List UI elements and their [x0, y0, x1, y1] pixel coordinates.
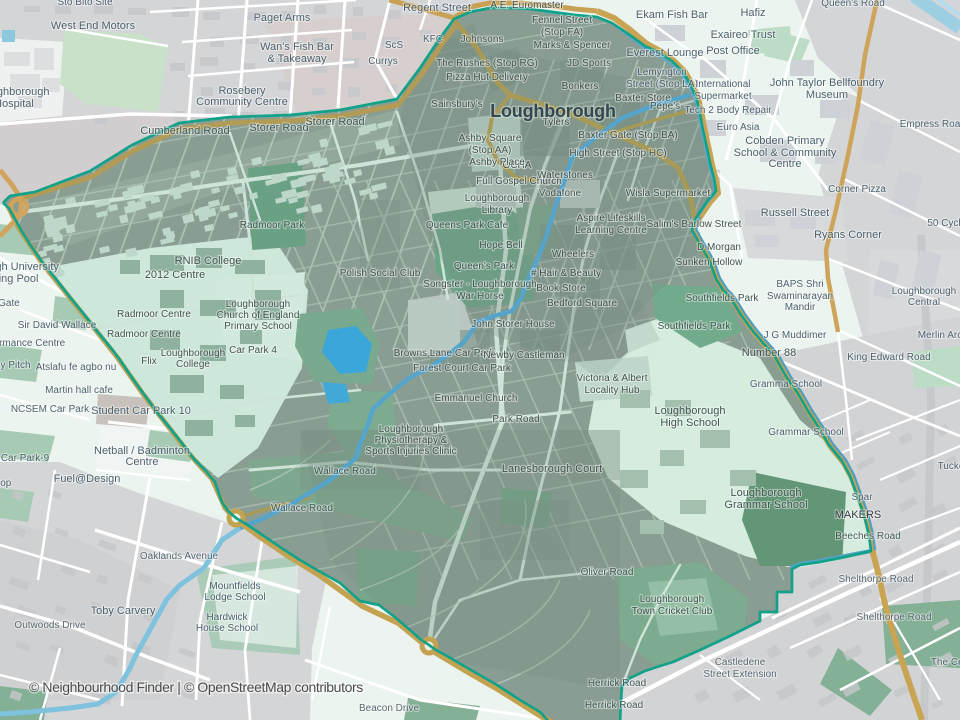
- svg-text:Browns Lane Car Park: Browns Lane Car Park: [394, 348, 496, 359]
- svg-text:Bedford Square: Bedford Square: [547, 298, 617, 309]
- svg-text:Newby Castleman: Newby Castleman: [483, 350, 564, 361]
- svg-text:ScS: ScS: [385, 40, 404, 51]
- svg-text:Community Centre: Community Centre: [196, 96, 288, 108]
- svg-text:Physiotherapy &: Physiotherapy &: [375, 435, 448, 446]
- svg-text:Cobden Primary: Cobden Primary: [745, 135, 825, 147]
- svg-text:RNIB College: RNIB College: [175, 255, 242, 267]
- svg-text:Museum: Museum: [806, 89, 848, 101]
- svg-text:Central: Central: [908, 297, 940, 308]
- svg-text:Lanesborough Court: Lanesborough Court: [502, 463, 602, 475]
- svg-text:Park Road: Park Road: [492, 414, 539, 425]
- svg-text:Flix: Flix: [141, 356, 157, 367]
- svg-text:Loughborough: Loughborough: [379, 424, 444, 435]
- svg-text:Student Car Park 10: Student Car Park 10: [91, 405, 191, 417]
- svg-text:JD Sports: JD Sports: [567, 58, 611, 69]
- svg-text:J G Muddimer: J G Muddimer: [764, 330, 827, 341]
- svg-text:ming Pool: ming Pool: [0, 273, 38, 285]
- svg-text:Mandir: Mandir: [785, 302, 816, 313]
- svg-text:Spar: Spar: [851, 492, 873, 503]
- svg-text:Toby Carvery: Toby Carvery: [91, 605, 156, 617]
- svg-text:Corner Pizza: Corner Pizza: [828, 184, 886, 195]
- svg-text:Hope Bell: Hope Bell: [479, 240, 522, 251]
- svg-text:College: College: [176, 359, 210, 370]
- svg-text:House School: House School: [196, 623, 258, 634]
- svg-text:Forest Court Car Park: Forest Court Car Park: [413, 363, 512, 374]
- svg-text:Loughborough: Loughborough: [0, 86, 49, 98]
- svg-text:Beacon Drive: Beacon Drive: [359, 703, 419, 714]
- svg-text:Fuel@Design: Fuel@Design: [54, 473, 121, 485]
- svg-text:Southfields Park: Southfields Park: [658, 321, 732, 332]
- svg-text:MAKERS: MAKERS: [835, 509, 881, 521]
- svg-text:Empress Roa: Empress Roa: [900, 119, 960, 130]
- svg-text:hop: hop: [0, 478, 12, 489]
- svg-text:Polish Social Club: Polish Social Club: [340, 268, 421, 279]
- svg-text:Vodafone: Vodafone: [539, 188, 582, 199]
- svg-text:Sports Injuries Clinic: Sports Injuries Clinic: [365, 446, 456, 457]
- svg-text:Ashby Place: Ashby Place: [469, 157, 525, 168]
- svg-text:NCSEM Car Park: NCSEM Car Park: [11, 404, 90, 415]
- svg-text:Loughborough: Loughborough: [465, 193, 530, 204]
- svg-text:Songster - Loughborough: Songster - Loughborough: [423, 279, 536, 290]
- svg-text:Town Cricket Club: Town Cricket Club: [632, 606, 713, 617]
- svg-text:Radmoor Park: Radmoor Park: [240, 220, 305, 231]
- svg-text:Exaireo Trust: Exaireo Trust: [711, 29, 776, 41]
- svg-text:Southfields Park: Southfields Park: [686, 293, 760, 304]
- svg-text:& Takeaway: & Takeaway: [267, 53, 327, 65]
- svg-text:Martin hall cafe: Martin hall cafe: [45, 385, 113, 396]
- svg-text:BAPS Shri: BAPS Shri: [776, 279, 823, 290]
- svg-text:Emmanuel Church: Emmanuel Church: [435, 393, 518, 404]
- svg-text:Loughborough: Loughborough: [161, 348, 226, 359]
- svg-text:Shelthorpe Road: Shelthorpe Road: [856, 612, 931, 623]
- svg-text:Number 88: Number 88: [742, 347, 796, 359]
- svg-text:King Edward Road: King Edward Road: [847, 352, 930, 363]
- svg-text:Outwoods Drive: Outwoods Drive: [14, 620, 86, 631]
- svg-text:Loughborough: Loughborough: [731, 487, 802, 499]
- svg-text:Ekam Fish Bar: Ekam Fish Bar: [636, 9, 708, 21]
- svg-text:Sunken Hollow: Sunken Hollow: [676, 257, 743, 268]
- svg-text:gby Pitch: gby Pitch: [0, 360, 31, 371]
- svg-text:2012 Centre: 2012 Centre: [145, 269, 206, 281]
- svg-text:Castledene: Castledene: [715, 657, 766, 668]
- svg-text:Car Park-9: Car Park-9: [1, 453, 50, 464]
- svg-text:Russell Street: Russell Street: [761, 207, 829, 219]
- svg-text:High School: High School: [660, 417, 719, 429]
- svg-text:Street Extension: Street Extension: [703, 669, 776, 680]
- svg-text:Currys: Currys: [368, 56, 397, 67]
- svg-text:John Taylor Bellfoundry: John Taylor Bellfoundry: [770, 77, 885, 89]
- svg-text:© Neighbourhood Finder | © Ope: © Neighbourhood Finder | © OpenStreetMap…: [29, 679, 363, 695]
- svg-text:Baxter Store: Baxter Store: [615, 93, 671, 104]
- svg-text:Cumberland Road: Cumberland Road: [140, 125, 229, 137]
- svg-text:Book Store: Book Store: [536, 283, 586, 294]
- svg-text:Paget Arms: Paget Arms: [254, 12, 311, 24]
- svg-text:Loughborough: Loughborough: [226, 299, 291, 310]
- svg-text:Regent Street: Regent Street: [403, 2, 471, 14]
- svg-text:Sir David Wallace: Sir David Wallace: [18, 320, 97, 331]
- svg-text:Marks & Spencer: Marks & Spencer: [534, 40, 611, 51]
- svg-text:War Horse: War Horse: [456, 291, 504, 302]
- svg-text:Herrick Road: Herrick Road: [585, 700, 643, 711]
- svg-text:Salim's Barlow Street: Salim's Barlow Street: [647, 219, 742, 230]
- svg-text:Gate: Gate: [0, 298, 20, 309]
- svg-text:Wheelers: Wheelers: [552, 249, 594, 260]
- svg-text:Wan's Fish Bar: Wan's Fish Bar: [260, 41, 334, 53]
- svg-text:Aspire Lifeskills: Aspire Lifeskills: [577, 213, 646, 224]
- svg-text:The Ced: The Ced: [931, 657, 960, 668]
- svg-text:Hospital: Hospital: [0, 98, 34, 110]
- svg-text:Car Park 4: Car Park 4: [229, 345, 277, 356]
- svg-text:Radmoor Centre: Radmoor Centre: [117, 309, 191, 320]
- svg-text:Gramma School: Gramma School: [750, 379, 822, 390]
- svg-text:Tech 2 Body Repair: Tech 2 Body Repair: [684, 105, 772, 116]
- svg-text:formance Centre: formance Centre: [0, 338, 66, 349]
- svg-text:Johnsons: Johnsons: [461, 34, 504, 45]
- svg-text:Wisla Supermarket: Wisla Supermarket: [626, 188, 711, 199]
- svg-text:Pizza Hut Delivery: Pizza Hut Delivery: [446, 72, 528, 83]
- svg-text:Swaminarayan: Swaminarayan: [767, 291, 833, 302]
- svg-text:High Street (Stop HC): High Street (Stop HC): [569, 148, 666, 159]
- svg-text:KFC: KFC: [423, 34, 443, 45]
- svg-text:Fennel Street: Fennel Street: [532, 15, 592, 26]
- svg-text:Sto Bito Site: Sto Bito Site: [57, 0, 112, 8]
- svg-text:Shelthorpe Road: Shelthorpe Road: [838, 574, 913, 585]
- svg-text:(Stop FA): (Stop FA): [541, 27, 583, 38]
- svg-text:Wallace Road: Wallace Road: [271, 503, 333, 514]
- svg-text:Storer Road: Storer Road: [305, 116, 364, 128]
- svg-text:Church of England: Church of England: [217, 310, 300, 321]
- svg-text:D Morgan: D Morgan: [697, 242, 741, 253]
- svg-text:John Storer House: John Storer House: [471, 319, 555, 330]
- svg-text:Storer Road: Storer Road: [249, 122, 308, 134]
- svg-text:West End Motors: West End Motors: [51, 20, 136, 32]
- svg-text:Tucke: Tucke: [938, 461, 960, 472]
- svg-text:Post Office: Post Office: [706, 45, 760, 57]
- svg-text:ough University: ough University: [0, 261, 59, 273]
- svg-text:Atslafu fe agbo nu: Atslafu fe agbo nu: [36, 362, 117, 373]
- svg-text:Loughborough: Loughborough: [640, 594, 705, 605]
- svg-text:Street (Stop LA): Street (Stop LA): [626, 79, 698, 90]
- svg-text:Euro Asia: Euro Asia: [717, 122, 760, 133]
- svg-text:Locality Hub: Locality Hub: [584, 385, 639, 396]
- svg-text:A.E. Euromaster: A.E. Euromaster: [490, 0, 564, 11]
- svg-text:Centre: Centre: [768, 158, 801, 170]
- svg-text:Waterstones: Waterstones: [537, 170, 593, 181]
- svg-text:Wallace Road: Wallace Road: [314, 466, 376, 477]
- svg-text:Sainsbury's: Sainsbury's: [431, 99, 482, 110]
- svg-text:Radmoor Centre: Radmoor Centre: [107, 329, 181, 340]
- svg-text:Merlin Arc: Merlin Arc: [918, 330, 960, 341]
- svg-text:50 Cycl: 50 Cycl: [927, 218, 960, 229]
- svg-text:Queen's Park: Queen's Park: [454, 261, 515, 272]
- svg-text:(Stop AA): (Stop AA): [469, 145, 512, 156]
- svg-text:Ryans Corner: Ryans Corner: [814, 229, 882, 241]
- svg-text:Loughborough: Loughborough: [892, 286, 957, 297]
- svg-text:Supermarket: Supermarket: [694, 91, 751, 102]
- svg-text:Ashby Square: Ashby Square: [459, 133, 522, 144]
- svg-text:Library: Library: [482, 205, 513, 216]
- svg-text:Beeches Road: Beeches Road: [835, 531, 901, 542]
- svg-text:# Hair & Beauty: # Hair & Beauty: [531, 268, 601, 279]
- svg-text:Hafiz: Hafiz: [740, 7, 765, 19]
- svg-text:Learning Centre: Learning Centre: [575, 225, 647, 236]
- svg-text:Grammar School: Grammar School: [768, 427, 844, 438]
- svg-text:International: International: [695, 79, 750, 90]
- svg-text:Hardwick: Hardwick: [206, 612, 248, 623]
- svg-text:Oliver Road: Oliver Road: [581, 567, 634, 578]
- svg-text:The Rushes (Stop RG): The Rushes (Stop RG): [436, 58, 538, 69]
- svg-text:Primary School: Primary School: [224, 321, 292, 332]
- svg-text:Mountfields: Mountfields: [209, 581, 260, 592]
- svg-text:Herrick Road: Herrick Road: [588, 678, 646, 689]
- svg-text:Oaklands Avenue: Oaklands Avenue: [140, 551, 219, 562]
- svg-text:Queen's Road: Queen's Road: [821, 0, 885, 9]
- svg-text:Victoria & Albert: Victoria & Albert: [577, 373, 648, 384]
- svg-text:Lodge School: Lodge School: [204, 592, 265, 603]
- svg-text:Baxter Gate (Stop BA): Baxter Gate (Stop BA): [578, 130, 678, 141]
- svg-text:Everest Lounge: Everest Lounge: [626, 47, 703, 59]
- svg-text:Loughborough: Loughborough: [655, 405, 726, 417]
- svg-text:Queens Park Cafe: Queens Park Cafe: [426, 220, 509, 231]
- svg-text:Bonkers: Bonkers: [562, 81, 599, 92]
- svg-text:Loughborough: Loughborough: [490, 101, 616, 121]
- svg-text:Grammar School: Grammar School: [724, 499, 807, 511]
- svg-text:Centre: Centre: [125, 456, 158, 468]
- svg-text:Lemyngton: Lemyngton: [637, 67, 686, 78]
